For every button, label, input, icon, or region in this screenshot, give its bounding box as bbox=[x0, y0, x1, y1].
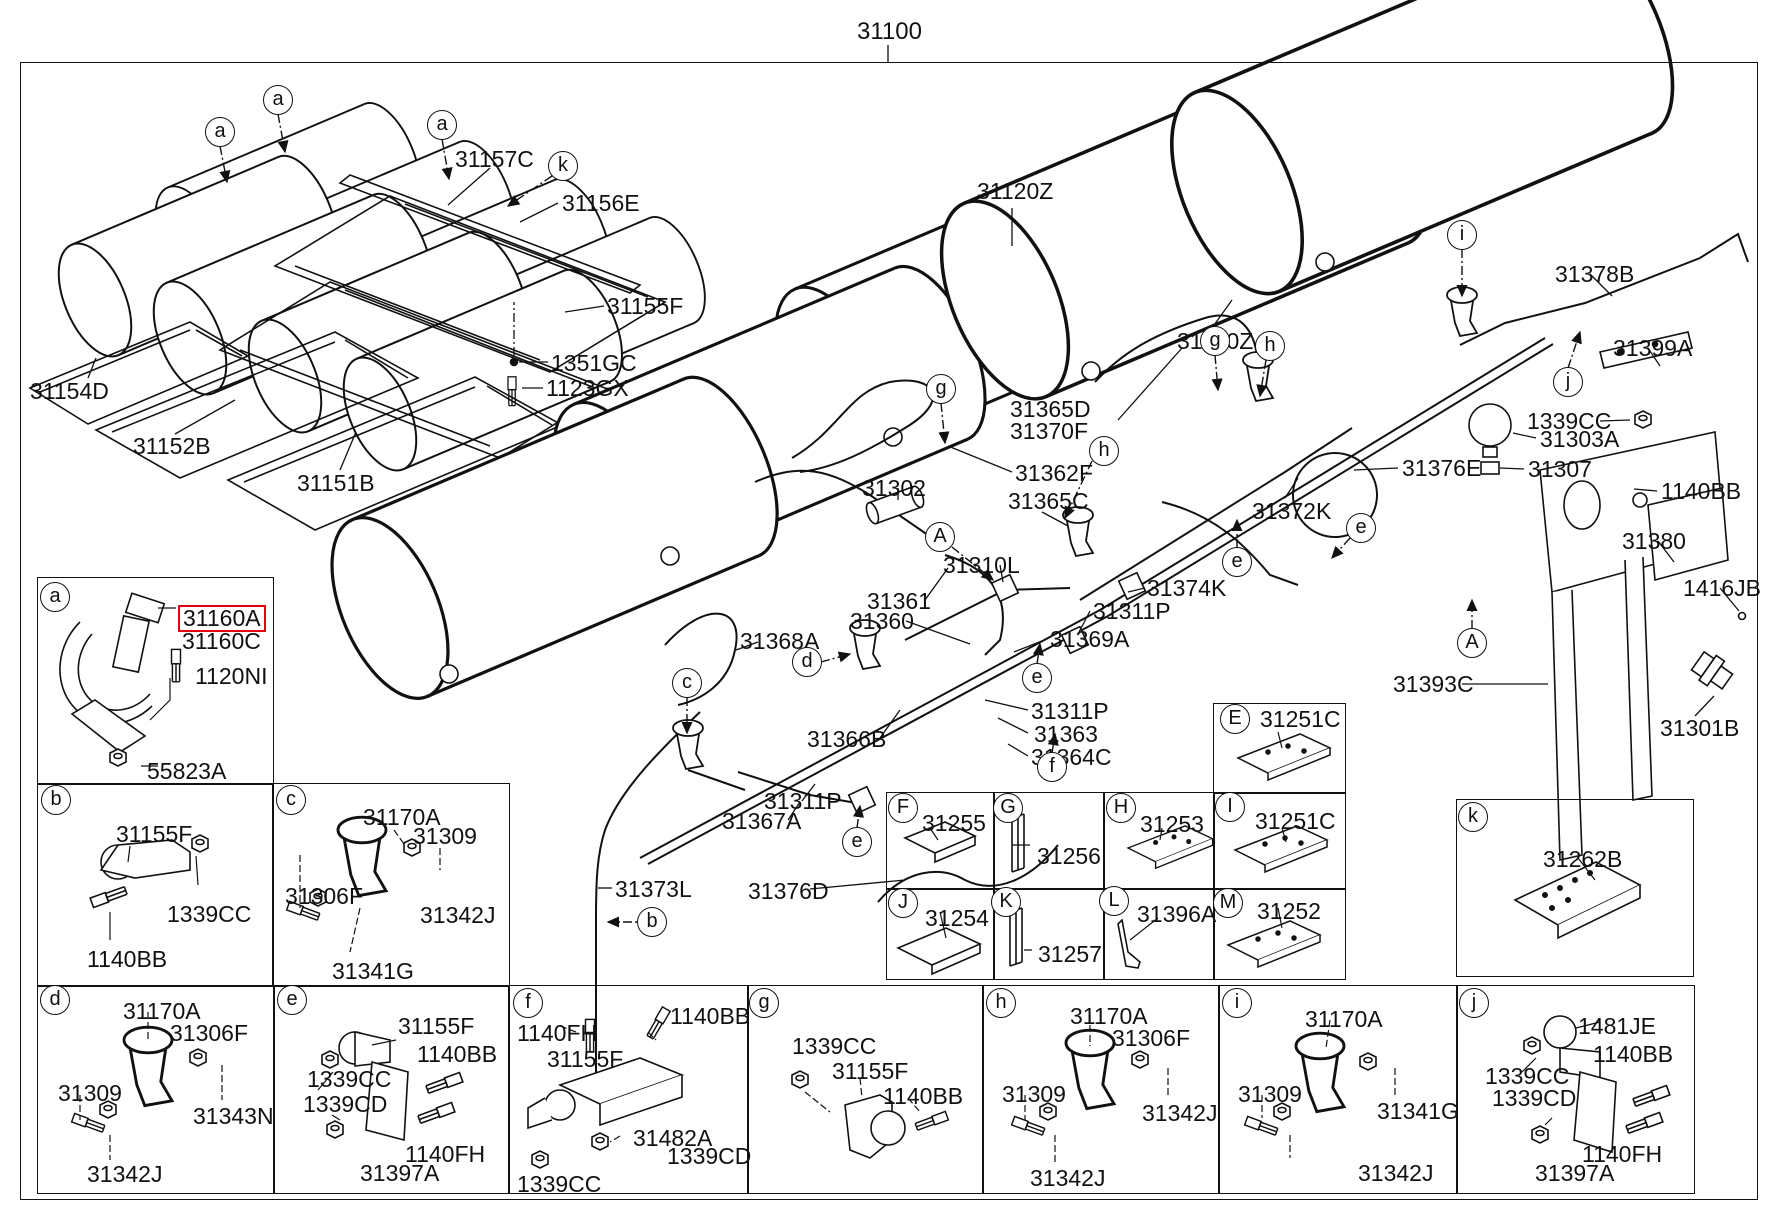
part-label[interactable]: 31302 bbox=[862, 477, 926, 500]
part-label[interactable]: 31309 bbox=[413, 825, 477, 848]
callout-E: E bbox=[1220, 704, 1250, 734]
part-label[interactable]: 31309 bbox=[1238, 1083, 1302, 1106]
part-label[interactable]: 1351GC bbox=[551, 352, 637, 375]
part-label[interactable]: 55823A bbox=[147, 760, 226, 783]
part-label[interactable]: 31378B bbox=[1555, 263, 1634, 286]
callout-k: k bbox=[1458, 802, 1488, 832]
part-label[interactable]: 31397A bbox=[1535, 1162, 1614, 1185]
part-label[interactable]: 1140BB bbox=[883, 1085, 963, 1108]
callout-K: K bbox=[991, 887, 1021, 917]
part-label[interactable]: 31365C bbox=[1008, 490, 1089, 513]
part-label[interactable]: 31151B bbox=[297, 472, 375, 495]
part-label[interactable]: 31251C bbox=[1255, 810, 1336, 833]
part-label[interactable]: 1140BB bbox=[670, 1005, 750, 1028]
callout-H: H bbox=[1106, 793, 1136, 823]
callout-J: J bbox=[888, 888, 918, 918]
part-label[interactable]: 31255 bbox=[922, 812, 986, 835]
part-label[interactable]: 1481JE bbox=[1578, 1015, 1656, 1038]
callout-g: g bbox=[749, 988, 779, 1018]
callout-k: k bbox=[548, 151, 578, 181]
part-label[interactable]: 31342J bbox=[1030, 1167, 1105, 1190]
callout-j: j bbox=[1553, 367, 1583, 397]
part-label[interactable]: 1140BB bbox=[87, 948, 167, 971]
part-label[interactable]: 31372K bbox=[1252, 500, 1331, 523]
part-label[interactable]: 31306F bbox=[285, 885, 363, 908]
part-label[interactable]: 31256 bbox=[1037, 845, 1101, 868]
callout-e: e bbox=[1346, 513, 1376, 543]
part-label[interactable]: 1339CD bbox=[1492, 1087, 1576, 1110]
callout-c: c bbox=[276, 785, 306, 815]
part-label[interactable]: 31342J bbox=[1358, 1162, 1433, 1185]
callout-h: h bbox=[1089, 436, 1119, 466]
part-label[interactable]: 31253 bbox=[1140, 813, 1204, 836]
callout-e: e bbox=[277, 985, 307, 1015]
callout-e: e bbox=[1022, 663, 1052, 693]
part-label[interactable]: 31156E bbox=[562, 192, 640, 215]
parts-diagram: 31100 31157C31156E31155F1351GC1123GX3115… bbox=[0, 0, 1772, 1211]
part-label[interactable]: 31370F bbox=[1010, 420, 1088, 443]
part-label[interactable]: 31366B bbox=[807, 728, 886, 751]
part-label[interactable]: 31310L bbox=[943, 554, 1020, 577]
part-label[interactable]: 31157C bbox=[455, 148, 534, 171]
callout-F: F bbox=[888, 793, 918, 823]
callout-g: g bbox=[1200, 326, 1230, 356]
part-box bbox=[1456, 799, 1694, 977]
part-label[interactable]: 1140BB bbox=[1661, 480, 1741, 503]
part-label[interactable]: 31306F bbox=[1112, 1027, 1190, 1050]
callout-e: e bbox=[1222, 547, 1252, 577]
callout-f: f bbox=[1037, 752, 1067, 782]
part-label[interactable]: 31397A bbox=[360, 1162, 439, 1185]
part-label[interactable]: 31303A bbox=[1540, 428, 1619, 451]
part-label[interactable]: 31376E bbox=[1402, 457, 1481, 480]
part-label[interactable]: 1140BB bbox=[1593, 1043, 1673, 1066]
part-label[interactable]: 1339CC bbox=[167, 903, 251, 926]
part-label[interactable]: 31369A bbox=[1050, 628, 1129, 651]
part-label[interactable]: 31307 bbox=[1528, 458, 1592, 481]
part-label[interactable]: 31363 bbox=[1034, 723, 1098, 746]
callout-i: i bbox=[1222, 988, 1252, 1018]
callout-h: h bbox=[986, 988, 1016, 1018]
part-label[interactable]: 31309 bbox=[1002, 1083, 1066, 1106]
part-label[interactable]: 31367A bbox=[722, 810, 801, 833]
callout-I: I bbox=[1215, 792, 1245, 822]
part-label[interactable]: 31360 bbox=[850, 610, 914, 633]
part-label[interactable]: 31306F bbox=[170, 1022, 248, 1045]
part-label[interactable]: 31160C bbox=[182, 630, 261, 653]
callout-d: d bbox=[40, 985, 70, 1015]
part-label[interactable]: 31342J bbox=[1142, 1102, 1217, 1125]
part-label[interactable]: 1123GX bbox=[546, 377, 629, 400]
part-label[interactable]: 31257 bbox=[1038, 943, 1102, 966]
callout-b: b bbox=[637, 907, 667, 937]
part-label[interactable]: 31155F bbox=[832, 1060, 908, 1083]
part-label[interactable]: 31376D bbox=[748, 880, 829, 903]
part-label[interactable]: 31120Z bbox=[977, 180, 1053, 203]
callout-L: L bbox=[1099, 886, 1129, 916]
part-label[interactable]: 1339CC bbox=[792, 1035, 876, 1058]
callout-h: h bbox=[1255, 331, 1285, 361]
part-label[interactable]: 31343N bbox=[193, 1105, 274, 1128]
callout-a: a bbox=[427, 110, 457, 140]
callout-f: f bbox=[513, 988, 543, 1018]
part-label[interactable]: 31362F bbox=[1015, 462, 1093, 485]
part-label[interactable]: 31396A bbox=[1137, 903, 1216, 926]
diagram-number: 31100 bbox=[857, 20, 922, 44]
callout-a: a bbox=[40, 582, 70, 612]
callout-i: i bbox=[1447, 220, 1477, 250]
part-label[interactable]: 31399A bbox=[1613, 337, 1692, 360]
part-label[interactable]: 31341G bbox=[1377, 1100, 1459, 1123]
part-label[interactable]: 31154D bbox=[30, 380, 109, 403]
part-label[interactable]: 31373L bbox=[615, 878, 692, 901]
part-label[interactable]: 31155F bbox=[547, 1048, 623, 1071]
callout-A: A bbox=[925, 522, 955, 552]
part-label[interactable]: 31155F bbox=[607, 295, 683, 318]
callout-d: d bbox=[792, 647, 822, 677]
part-label[interactable]: 31311P bbox=[1093, 600, 1171, 623]
callout-b: b bbox=[41, 785, 71, 815]
callout-a: a bbox=[263, 85, 293, 115]
callout-M: M bbox=[1213, 888, 1243, 918]
part-label[interactable]: 31311P bbox=[1031, 700, 1109, 723]
part-label[interactable]: 1140BB bbox=[417, 1043, 497, 1066]
part-label[interactable]: 31251C bbox=[1260, 708, 1341, 731]
callout-j: j bbox=[1459, 988, 1489, 1018]
callout-A: A bbox=[1457, 628, 1487, 658]
part-label[interactable]: 1416JB bbox=[1683, 577, 1761, 600]
part-label[interactable]: 31262B bbox=[1543, 848, 1622, 871]
part-label[interactable]: 31393C bbox=[1393, 673, 1474, 696]
part-label[interactable]: 1339CD bbox=[667, 1145, 751, 1168]
part-label[interactable]: 1120NI bbox=[195, 665, 267, 688]
part-label[interactable]: 31342J bbox=[420, 904, 495, 927]
part-label[interactable]: 1140FH bbox=[517, 1022, 597, 1045]
part-label[interactable]: 31342J bbox=[87, 1163, 162, 1186]
part-label[interactable]: 31155F bbox=[398, 1015, 474, 1038]
part-label[interactable]: 1339CD bbox=[303, 1093, 387, 1116]
part-label[interactable]: 1339CC bbox=[517, 1173, 601, 1196]
callout-a: a bbox=[205, 117, 235, 147]
part-label[interactable]: 31301B bbox=[1660, 717, 1739, 740]
callout-G: G bbox=[993, 793, 1023, 823]
part-label[interactable]: 31152B bbox=[133, 435, 211, 458]
part-label[interactable]: 31374K bbox=[1147, 577, 1226, 600]
callout-e: e bbox=[842, 827, 872, 857]
callout-g: g bbox=[926, 374, 956, 404]
part-label[interactable]: 31341G bbox=[332, 960, 414, 983]
part-label[interactable]: 31252 bbox=[1257, 900, 1321, 923]
callout-c: c bbox=[672, 668, 702, 698]
part-label[interactable]: 31155F bbox=[116, 823, 192, 846]
part-label[interactable]: 31380 bbox=[1622, 530, 1686, 553]
part-label[interactable]: 31309 bbox=[58, 1082, 122, 1105]
part-label[interactable]: 31170A bbox=[1305, 1008, 1383, 1031]
part-label[interactable]: 1339CC bbox=[307, 1068, 391, 1091]
part-label[interactable]: 31254 bbox=[925, 907, 989, 930]
